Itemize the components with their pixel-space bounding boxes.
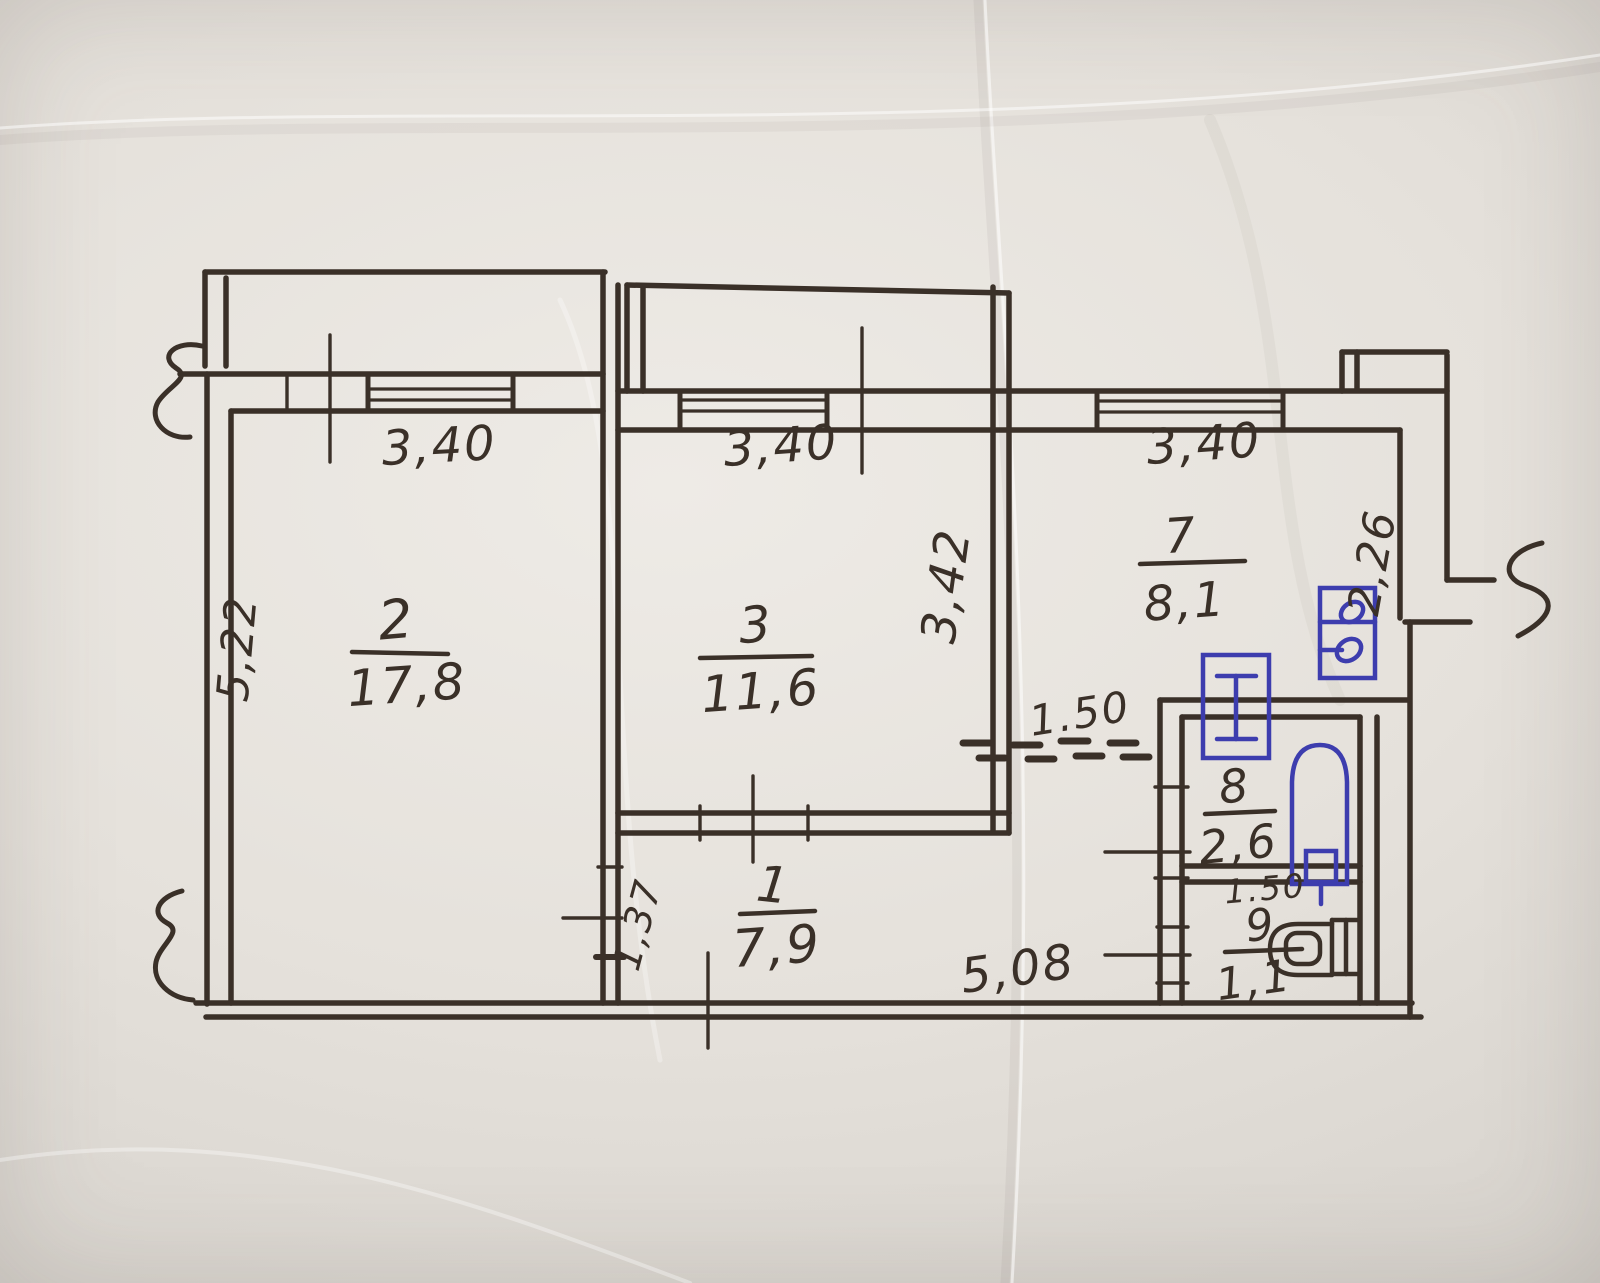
toilet-number: 9 xyxy=(1243,899,1278,953)
balcony-room3 xyxy=(627,285,1009,391)
dim-room3-right-height: 3,42 xyxy=(910,525,981,647)
floor-plan-photo: 3,40 3,40 3,40 5,22 3,42 2,26 1,37 1.50 … xyxy=(0,0,1600,1283)
dim-room3-top-width: 3,40 xyxy=(722,414,841,478)
dim-kitchen-top-width: 3,40 xyxy=(1145,412,1264,476)
room2-number: 2 xyxy=(376,587,418,653)
room-label-toilet: 9 1,1 xyxy=(1213,899,1302,1012)
balcony-room2 xyxy=(205,272,605,366)
kitchen-number: 7 xyxy=(1163,507,1199,565)
break-top-left xyxy=(155,345,202,438)
dim-kitchen-right-height: 2,26 xyxy=(1338,506,1407,619)
kitchen-underline xyxy=(1140,561,1245,564)
dim-passage-width: 1.50 xyxy=(1026,682,1134,746)
dim-room2-top-width: 3,40 xyxy=(380,415,498,477)
room-label-bedroom: 3 11,6 xyxy=(699,595,822,724)
toilet-underline xyxy=(1225,949,1302,952)
bathroom-number: 8 xyxy=(1216,758,1253,815)
dim-room2-left-height: 5,22 xyxy=(208,594,268,704)
washbasin-symbol xyxy=(1203,655,1269,758)
dim-hallway-height: 1,37 xyxy=(604,874,670,975)
floor-plan-drawing: 3,40 3,40 3,40 5,22 3,42 2,26 1,37 1.50 … xyxy=(0,0,1600,1283)
dim-bottom-width: 5,08 xyxy=(957,933,1079,1004)
room-label-kitchen: 7 8,1 xyxy=(1140,507,1245,633)
top-right-jut xyxy=(1342,352,1447,391)
break-entrance xyxy=(1509,543,1548,636)
break-bottom-left xyxy=(155,891,193,1000)
window-room2 xyxy=(368,374,513,411)
bathroom-area: 2,6 xyxy=(1196,813,1280,875)
kitchen-area: 8,1 xyxy=(1142,571,1228,633)
room3-underline xyxy=(700,656,812,658)
room3-area: 11,6 xyxy=(699,658,822,724)
hallway-number: 1 xyxy=(754,854,794,915)
room-label-hallway: 1 7,9 xyxy=(730,854,823,980)
labels: 3,40 3,40 3,40 5,22 3,42 2,26 1,37 1.50 … xyxy=(208,412,1407,1011)
toilet-area: 1,1 xyxy=(1213,950,1295,1011)
room-label-living-room: 2 17,8 xyxy=(345,587,468,719)
room3-number: 3 xyxy=(737,595,775,655)
hallway-underline xyxy=(740,911,815,914)
room2-area: 17,8 xyxy=(345,652,468,718)
hallway-area: 7,9 xyxy=(730,914,823,980)
